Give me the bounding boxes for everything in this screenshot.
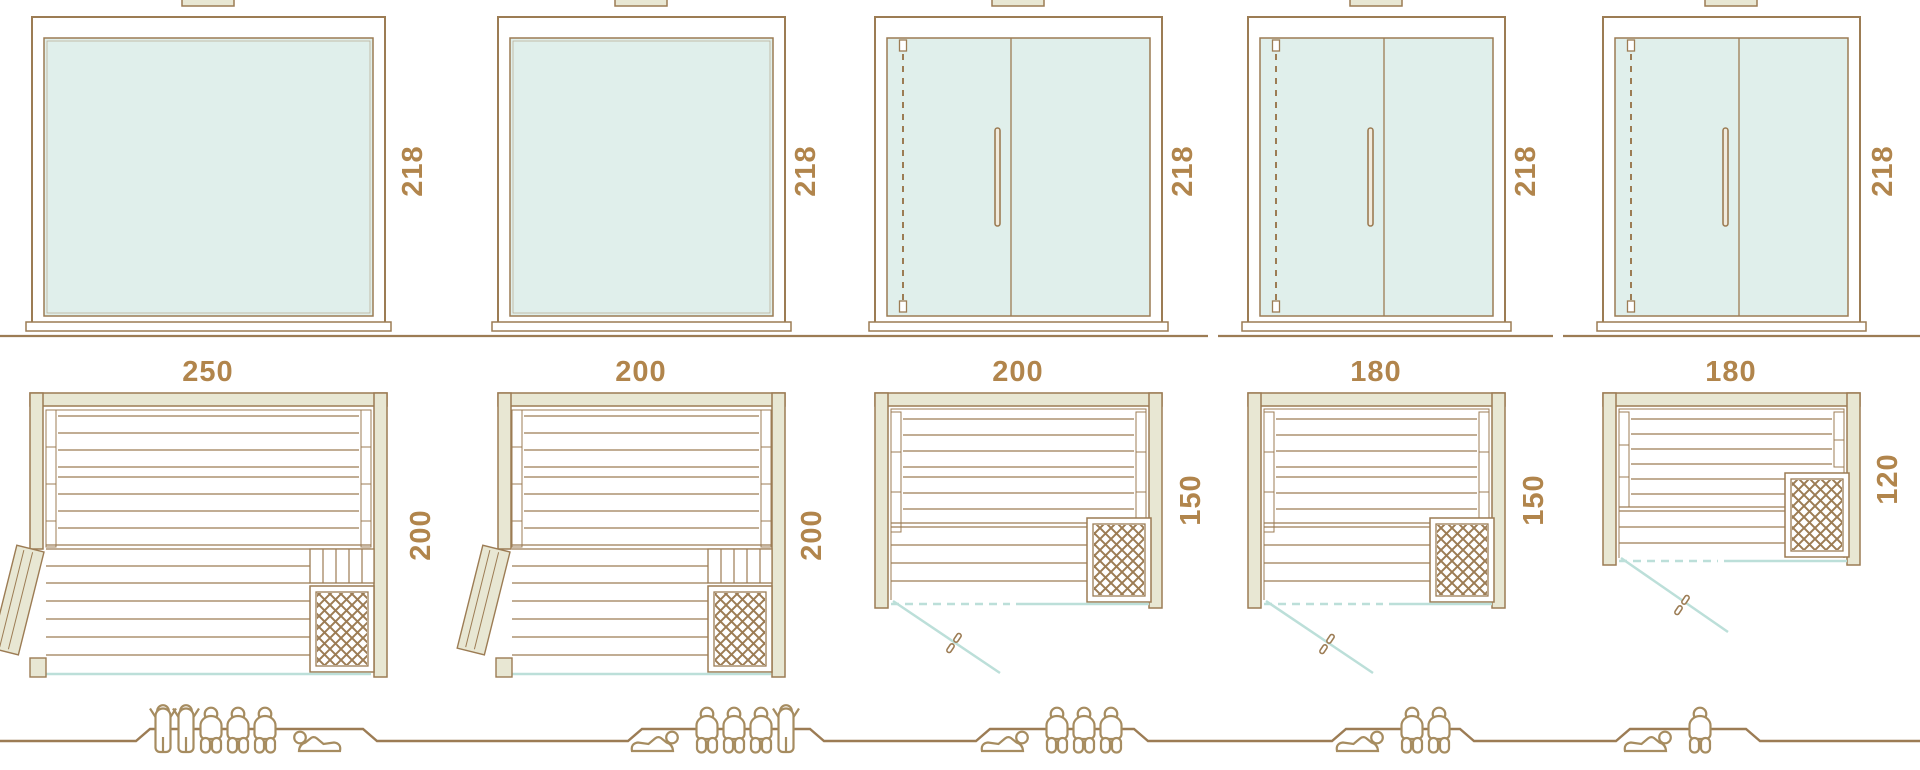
wall-right [772, 393, 785, 677]
glass-panel [1260, 38, 1493, 316]
heater-lattice-icon [1792, 480, 1842, 550]
heater-lattice-icon [317, 593, 367, 665]
sauna-column-2: 218 200 200 [457, 0, 828, 753]
person-sitting-icon [255, 708, 276, 753]
floor-planks [512, 566, 708, 655]
elevation-front-view [1597, 0, 1866, 331]
roof-vent-tab [992, 0, 1044, 6]
roof-vent-tab [1350, 0, 1402, 6]
person-lying-icon [1625, 732, 1671, 751]
height-label: 218 [1167, 145, 1199, 196]
side-slat-strip [1479, 412, 1489, 532]
floor-planks [1619, 527, 1785, 543]
width-label: 180 [1350, 356, 1401, 388]
sill [492, 322, 791, 331]
bench-planks [46, 416, 371, 549]
person-sitting-icon [751, 708, 772, 753]
depth-label: 200 [405, 509, 437, 560]
depth-label: 150 [1518, 474, 1550, 525]
person-sitting-icon [1402, 708, 1423, 753]
wall-left [498, 393, 511, 549]
width-label: 200 [992, 356, 1043, 388]
height-label: 218 [790, 145, 822, 196]
width-label: 250 [182, 356, 233, 388]
glass-door-swing-line [1621, 558, 1728, 632]
door-leaf [457, 545, 510, 655]
sill [869, 322, 1168, 331]
glass-panel [887, 38, 1150, 316]
width-label: 180 [1705, 356, 1756, 388]
heater-lattice-icon [1437, 525, 1487, 595]
person-sitting-icon [724, 708, 745, 753]
depth-label: 200 [796, 509, 828, 560]
side-slat-strip [891, 412, 901, 532]
door-handle-icon [1723, 128, 1728, 226]
depth-label: 150 [1175, 474, 1207, 525]
diagram-canvas: 218 250 200 [0, 0, 1920, 770]
bench-planks [1264, 419, 1489, 527]
elevation-front-view [492, 0, 791, 331]
door-handle-icon [1319, 634, 1335, 655]
elevation-front-view [1242, 0, 1511, 331]
person-sitting-icon [1074, 708, 1095, 753]
sill [26, 322, 391, 331]
door-handle-icon [995, 128, 1000, 226]
wall-top [1603, 393, 1860, 406]
plan-top-view [1603, 393, 1860, 632]
heater [708, 586, 772, 672]
glass-door-swing-line [893, 601, 1000, 673]
hinge-pivot [900, 301, 907, 312]
person-sitting-icon [1047, 708, 1068, 753]
person-sitting-icon [201, 708, 222, 753]
door-leaf [0, 545, 44, 655]
hinge-pivot [1273, 40, 1280, 51]
side-slat-strip [46, 410, 56, 547]
heater [1430, 518, 1494, 602]
height-label: 218 [397, 145, 429, 196]
person-sitting-icon [697, 708, 718, 753]
hinge-pivot [900, 40, 907, 51]
door-post [496, 658, 512, 677]
floor-planks [1264, 545, 1430, 581]
person-lying-icon [1337, 732, 1383, 751]
floor-planks [46, 566, 310, 655]
wall-left [1248, 393, 1261, 608]
side-slat-strip [1136, 412, 1146, 532]
plan-top-view [1248, 393, 1505, 673]
glass-panel [510, 38, 773, 316]
side-slat-strip [761, 410, 771, 547]
wall-top [875, 393, 1162, 406]
plan-top-view [0, 393, 387, 677]
person-sitting-icon [228, 708, 249, 753]
depth-label: 120 [1872, 453, 1904, 504]
person-lying-icon [632, 732, 678, 751]
roof-vent-tab [615, 0, 667, 6]
door-post [30, 658, 46, 677]
door-handle-icon [1368, 128, 1373, 226]
elevation-front-view [26, 0, 391, 331]
sauna-column-1: 218 250 200 [0, 0, 437, 753]
glass-panel [1615, 38, 1848, 316]
sauna-size-diagram-sheet: 218 250 200 [0, 0, 1920, 770]
floor-planks [891, 545, 1087, 581]
height-label: 218 [1510, 145, 1542, 196]
wall-top [1248, 393, 1505, 406]
wall-left [30, 393, 43, 549]
side-slat-strip [512, 410, 522, 547]
heater [1785, 473, 1849, 557]
wall-top [498, 393, 785, 406]
elevation-front-view [869, 0, 1168, 331]
glass-door-swing-line [1266, 601, 1373, 673]
sauna-column-4: 218 180 150 [1242, 0, 1550, 753]
wall-left [1603, 393, 1616, 565]
wall-left [875, 393, 888, 608]
roof-vent-tab [1705, 0, 1757, 6]
side-slat-strip [1619, 412, 1629, 507]
hinge-pivot [1628, 40, 1635, 51]
hinge-pivot [1628, 301, 1635, 312]
bench-planks [891, 419, 1146, 527]
hinge-pivot [1273, 301, 1280, 312]
bench-step [310, 549, 374, 583]
roof-vent-tab [182, 0, 234, 6]
heater [310, 586, 374, 672]
person-lying-icon [294, 732, 340, 751]
person-lying-icon [982, 732, 1028, 751]
wall-top [30, 393, 387, 406]
side-slat-strip [1264, 412, 1274, 532]
sill [1597, 322, 1866, 331]
glass-panel [44, 38, 373, 316]
plan-top-view [875, 393, 1162, 673]
heater-lattice-icon [1094, 525, 1144, 595]
sill [1242, 322, 1511, 331]
sauna-column-5: 218 180 120 [1597, 0, 1904, 753]
bench-step [708, 549, 772, 583]
side-slat-strip [361, 410, 371, 547]
person-sitting-icon [1101, 708, 1122, 753]
heater [1087, 518, 1151, 602]
heater-lattice-icon [715, 593, 765, 665]
people-ground-line [0, 729, 1920, 741]
person-sitting-icon [1690, 708, 1711, 753]
sauna-column-3: 218 200 150 [869, 0, 1207, 753]
height-label: 218 [1867, 145, 1899, 196]
wall-right [374, 393, 387, 677]
bench-planks [512, 416, 771, 549]
plan-top-view [457, 393, 785, 677]
person-sitting-icon [1429, 708, 1450, 753]
width-label: 200 [615, 356, 666, 388]
